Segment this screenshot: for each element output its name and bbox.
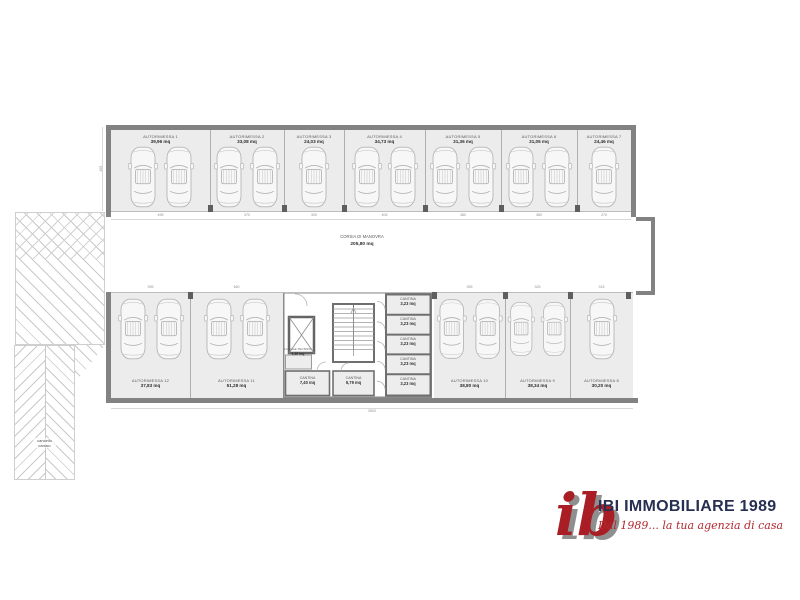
partition-wall <box>190 293 191 398</box>
corridor-label: CORSIA DI MANOVRA 205,80 mq <box>338 234 386 247</box>
garage-unit: AUTORIMESSA 1237,83 mq <box>111 293 190 398</box>
room-area: 1,40 mq <box>283 352 313 356</box>
room-label: CANTINA7,40 mq <box>287 376 328 386</box>
floor-plan-page: cancello carraio CORSIA DI MANOVRA 205,8… <box>0 0 800 600</box>
ramp-taper <box>75 345 105 383</box>
garage-label: AUTORIMESSA 631,05 mq <box>501 134 577 145</box>
garage-unit: AUTORIMESSA 724,46 mq <box>577 130 631 211</box>
ramp-driveway <box>14 345 75 480</box>
room-area: 3,23 mq <box>387 381 429 386</box>
wall-segment <box>651 217 655 295</box>
garage-unit: AUTORIMESSA 1151,28 mq <box>190 293 283 398</box>
wall-post <box>432 292 437 299</box>
room-label: CANTINA3,23 mq <box>387 297 429 307</box>
garage-label: AUTORIMESSA 1151,28 mq <box>190 378 283 389</box>
wall-post <box>575 205 580 212</box>
dimension-label: 315 <box>570 286 633 290</box>
dimension-label: 270 <box>577 214 631 218</box>
room-label: CANTINA5,79 mq <box>334 376 373 386</box>
car-top-view-icon <box>465 145 497 209</box>
core-labels: CANTINA3,23 mqCANTINA3,23 mqCANTINA3,23 … <box>283 292 432 398</box>
car-top-view-icon <box>351 145 383 209</box>
garage-area: 38,34 mq <box>505 383 570 389</box>
car-top-view-icon <box>505 145 537 209</box>
wall-post <box>568 292 573 299</box>
wall-segment <box>631 125 636 217</box>
garage-label: AUTORIMESSA 233,08 mq <box>210 134 284 145</box>
dimension-label: 355 <box>434 286 505 290</box>
garage-area: 30,20 mq <box>570 383 633 389</box>
garage-unit: AUTORIMESSA 631,05 mq <box>501 130 577 211</box>
partition-wall <box>344 130 345 211</box>
garage-unit: AUTORIMESSA 938,34 mq <box>505 293 570 398</box>
dimension-label: 300 <box>284 214 344 218</box>
garage-area: 38,80 mq <box>434 383 505 389</box>
room-area: 5,79 mq <box>334 380 373 385</box>
wall-segment <box>106 398 638 403</box>
garage-label: AUTORIMESSA 531,36 mq <box>425 134 501 145</box>
dimension-label: 405 <box>100 160 104 178</box>
garage-unit: AUTORIMESSA 434,73 mq <box>344 130 425 211</box>
dimension-label: 380 <box>501 214 577 218</box>
car-top-view-icon <box>387 145 419 209</box>
room-label: CANTINA3,23 mq <box>387 317 429 327</box>
access-ramp <box>15 212 105 345</box>
dimension-label: 325 <box>505 286 570 290</box>
room-area: 3,23 mq <box>387 341 429 346</box>
wall-post <box>503 292 508 299</box>
car-top-view-icon <box>163 145 195 209</box>
corridor-name: CORSIA DI MANOVRA <box>338 234 386 240</box>
garage-label: AUTORIMESSA 1038,80 mq <box>434 378 505 389</box>
garage-label: AUTORIMESSA 1237,83 mq <box>111 378 190 389</box>
partition-wall <box>577 130 578 211</box>
car-top-view-icon <box>587 145 621 209</box>
garage-unit: AUTORIMESSA 1038,80 mq <box>434 293 505 398</box>
car-top-view-icon <box>203 297 235 361</box>
garage-label: AUTORIMESSA 938,34 mq <box>505 378 570 389</box>
wall-post <box>208 205 213 212</box>
room-area: 3,23 mq <box>387 301 429 306</box>
garage-front-line <box>111 211 631 212</box>
dimension-label: 395 <box>111 286 190 290</box>
ramp-center-line <box>45 346 46 479</box>
ramp-chevron-left <box>15 346 45 479</box>
car-top-view-icon <box>429 145 461 209</box>
garage-label: AUTORIMESSA 139,96 mq <box>111 134 210 145</box>
room-label: CANTINA3,23 mq <box>387 337 429 347</box>
partition-wall <box>284 130 285 211</box>
car-top-view-icon <box>249 145 281 209</box>
logo-text: IBI IMMOBILIARE 1989 Dal 1989... la tua … <box>598 498 783 532</box>
car-top-view-icon <box>472 297 504 361</box>
room-area: 3,23 mq <box>387 361 429 366</box>
garage-label: AUTORIMESSA 830,20 mq <box>570 378 633 389</box>
dimension-label: 2600 <box>111 410 633 414</box>
ramp-chevron-right <box>45 346 75 479</box>
brand-name: IBI IMMOBILIARE 1989 <box>598 498 783 516</box>
garage-unit: AUTORIMESSA 324,03 mq <box>284 130 344 211</box>
wall-post <box>282 205 287 212</box>
garage-unit: AUTORIMESSA 233,08 mq <box>210 130 284 211</box>
wall-post <box>423 205 428 212</box>
wall-post <box>626 292 631 299</box>
garage-area: 51,28 mq <box>190 383 283 389</box>
room-area: 7,40 mq <box>287 380 328 385</box>
partition-wall <box>501 130 502 211</box>
room-area: 3,23 mq <box>387 321 429 326</box>
wall-post <box>342 205 347 212</box>
car-top-view-icon <box>213 145 245 209</box>
room-label: CANTINA3,23 mq <box>387 357 429 367</box>
room-label: LOCALE TECNICO1,40 mq <box>283 348 313 356</box>
brand-tagline: Dal 1989... la tua agenzia di casa <box>598 519 783 532</box>
dimension-label: 495 <box>111 214 210 218</box>
car-top-view-icon <box>297 145 331 209</box>
dimension-label: 460 <box>190 286 283 290</box>
dimension-label: 380 <box>425 214 501 218</box>
car-top-view-icon <box>239 297 271 361</box>
car-top-view-icon <box>585 297 619 361</box>
partition-wall <box>425 130 426 211</box>
car-top-view-icon <box>117 297 149 361</box>
room-label: CANTINA3,23 mq <box>387 377 429 387</box>
car-top-view-icon <box>540 297 569 361</box>
partition-wall <box>505 293 506 398</box>
car-top-view-icon <box>153 297 185 361</box>
corridor-area: 205,80 mq <box>338 242 386 247</box>
partition-wall <box>570 293 571 398</box>
garage-label: AUTORIMESSA 724,46 mq <box>577 134 631 145</box>
ramp-crosshatch <box>16 213 104 259</box>
car-top-view-icon <box>507 297 536 361</box>
garage-unit: AUTORIMESSA 139,96 mq <box>111 130 210 211</box>
car-top-view-icon <box>436 297 468 361</box>
wall-segment <box>636 291 655 295</box>
partition-wall <box>210 130 211 211</box>
garage-label: AUTORIMESSA 434,73 mq <box>344 134 425 145</box>
car-top-view-icon <box>541 145 573 209</box>
garage-unit: AUTORIMESSA 830,20 mq <box>570 293 633 398</box>
garage-unit: AUTORIMESSA 531,36 mq <box>425 130 501 211</box>
garage-label: AUTORIMESSA 324,03 mq <box>284 134 344 145</box>
garage-area: 37,83 mq <box>111 383 190 389</box>
dimension-label: 370 <box>210 214 284 218</box>
gate-label: cancello carraio <box>33 438 56 448</box>
wall-post <box>499 205 504 212</box>
dimension-label: 405 <box>344 214 425 218</box>
agency-logo: ib ib IBI IMMOBILIARE 1989 Dal 1989... l… <box>540 484 792 562</box>
dimension-line <box>111 219 631 220</box>
wall-post <box>188 292 193 299</box>
car-top-view-icon <box>127 145 159 209</box>
